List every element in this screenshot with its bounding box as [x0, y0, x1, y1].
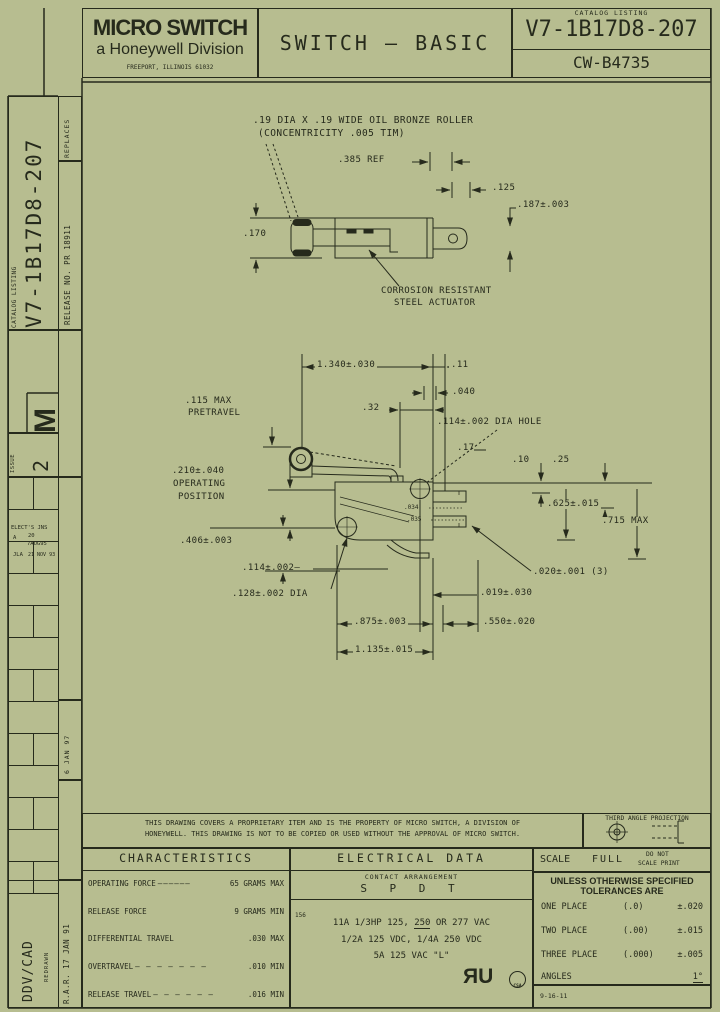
char-row-overtravel: OVERTRAVEL— — — — — — —.010 MIN	[88, 962, 284, 971]
char-value: 65 GRAMS MAX	[230, 879, 284, 888]
csa-text: CSA	[513, 984, 521, 989]
drawing-sheet: MICRO SWITCH a Honeywell Division FREEPO…	[0, 0, 720, 1012]
tol-label: ANGLES	[541, 972, 623, 983]
rating-line1b-underlined: 250	[414, 918, 430, 929]
op-position-line2: OPERATING	[173, 480, 225, 489]
issue-number: 2	[31, 440, 51, 472]
terminal-label-nc: .035	[407, 517, 421, 523]
tol-row-angles: ANGLES1°	[541, 972, 703, 983]
logo-text: MICRO SWITCH	[83, 17, 257, 39]
sidebar-cell-1	[58, 330, 82, 477]
ul-r: R	[463, 966, 478, 987]
form-strip: 9-16-11	[533, 985, 711, 1008]
catalog-listing-label: CATALOG LISTING	[513, 10, 710, 17]
rev-entry-1: ELECT'S JNS	[11, 526, 47, 532]
char-row-release-force: RELEASE FORCE9 GRAMS MIN	[88, 907, 284, 916]
dim-17: .17	[457, 444, 474, 453]
projection-label: THIRD ANGLE PROJECTION	[584, 816, 710, 822]
rev-entry-3a: JLA	[13, 553, 23, 559]
projection-box: THIRD ANGLE PROJECTION	[583, 813, 711, 848]
dim-020: .020±.001 (3)	[533, 568, 609, 577]
tol-row-one-place: ONE PLACE(.0)±.020	[541, 902, 703, 912]
pretravel-line1: .115 MAX	[185, 397, 232, 406]
redrawn-label: REDRAWN	[45, 922, 51, 982]
char-value: .030 MAX	[248, 934, 284, 943]
replaces-label: REPLACES	[64, 100, 71, 158]
op-position-line3: POSITION	[178, 493, 225, 502]
char-dashes: — — — — — — —	[133, 962, 248, 971]
rev-entry-3b: 21 NOV 93	[28, 553, 55, 558]
tol-label: TWO PLACE	[541, 926, 623, 936]
tol-ref: (.00)	[623, 926, 671, 936]
actuator-note-line2: STEEL ACTUATOR	[394, 299, 475, 308]
form-number: 9-16-11	[540, 993, 567, 1000]
tol-value: ±.015	[677, 926, 703, 936]
char-value: .010 MIN	[248, 962, 284, 971]
dim-170: .170	[243, 230, 266, 239]
dim-550: .550±.020	[483, 618, 535, 627]
dim-10: .10	[512, 456, 529, 465]
char-dashes: — — — — — —	[151, 990, 248, 999]
dim-385-ref: .385 REF	[338, 156, 385, 165]
sheet-title: SWITCH – BASIC	[259, 33, 511, 53]
actuator-note-line1: CORROSION RESISTANT	[381, 287, 492, 296]
sidebar-cell-2	[58, 477, 82, 700]
dim-019: .019±.030	[480, 589, 532, 598]
tol-ref: (.0)	[623, 902, 671, 912]
title-block: SWITCH – BASIC	[258, 8, 512, 78]
hole-note: .114±.002 DIA HOLE	[437, 418, 542, 427]
tolerance-header2: TOLERANCES ARE	[534, 887, 710, 896]
roller-note-line1: .19 DIA X .19 WIDE OIL BRONZE ROLLER	[253, 116, 473, 126]
char-value: 9 GRAMS MIN	[234, 907, 284, 916]
contact-arrangement-label: CONTACT ARRANGEMENT	[291, 874, 532, 881]
drawing-number: CW-B4735	[513, 55, 710, 71]
tol-row-three-place: THREE PLACE(.000)±.005	[541, 950, 703, 960]
tol-label: ONE PLACE	[541, 902, 623, 912]
revision-letter: M	[31, 395, 61, 433]
electrical-table: ELECTRICAL DATA CONTACT ARRANGEMENT S P …	[290, 848, 533, 1008]
rating-line1a: 11A 1/3HP 125,	[333, 918, 414, 928]
proprietary-line2: HONEYWELL. THIS DRAWING IS NOT TO BE COP…	[83, 831, 582, 838]
proprietary-line1: THIS DRAWING COVERS A PROPRIETARY ITEM A…	[83, 820, 582, 827]
char-row-differential-travel: DIFFERENTIAL TRAVEL.030 MAX	[88, 934, 284, 943]
dim-25: .25	[552, 456, 569, 465]
electrical-title: ELECTRICAL DATA	[291, 853, 532, 865]
drawn-by: R.A.R. 17 JAN 91	[63, 886, 71, 1004]
drawn-system: DDV/CAD	[22, 898, 35, 1002]
catalog-block: CATALOG LISTING V7-1B17D8-207 CW-B4735	[512, 8, 711, 78]
proprietary-box: THIS DRAWING COVERS A PROPRIETARY ITEM A…	[82, 813, 583, 848]
scale-label: SCALE	[540, 855, 570, 865]
logo-block: MICRO SWITCH a Honeywell Division FREEPO…	[82, 8, 258, 78]
tol-value: ±.005	[677, 950, 703, 960]
op-position-line1: .210±.040	[172, 467, 224, 476]
no-scale-line1: DO NOT	[646, 852, 669, 858]
scale-box: SCALE FULL DO NOT SCALE PRINT	[533, 848, 711, 872]
char-label: OPERATING FORCE	[88, 879, 156, 888]
terminal-label-no: .034	[404, 505, 418, 511]
char-value: .016 MIN	[248, 990, 284, 999]
tol-value: ±.020	[677, 902, 703, 912]
dim-32: .32	[362, 404, 379, 413]
scale-value: FULL	[592, 855, 624, 865]
tolerance-box: UNLESS OTHERWISE SPECIFIED TOLERANCES AR…	[533, 872, 711, 985]
dim-187: .187±.003	[517, 201, 569, 210]
logo-division: a Honeywell Division	[83, 42, 257, 58]
sidebar-catalog-number: V7-1B17D8-207	[24, 100, 45, 328]
sidebar-catalog-label: CATALOG LISTING	[12, 252, 18, 328]
tolerance-header1: UNLESS OTHERWISE SPECIFIED	[534, 877, 710, 886]
dim-114: .114±.002—	[242, 564, 300, 573]
dim-11: .11	[449, 361, 470, 370]
tol-label: THREE PLACE	[541, 950, 623, 960]
char-label: RELEASE FORCE	[88, 907, 147, 916]
dim-406: .406±.003	[180, 537, 232, 546]
rev-entry-2b: 20	[28, 534, 35, 540]
dim-128: .128±.002 DIA	[232, 590, 308, 599]
tol-value: 1°	[693, 972, 703, 983]
approval-date: 6 JAN 97	[64, 706, 71, 774]
rating-line1c: OR 277 VAC	[430, 918, 490, 928]
rating-line2: 1/2A 125 VDC, 1/4A 250 VDC	[291, 936, 532, 945]
dim-625: .625±.015	[545, 500, 601, 509]
dim-715: .715 MAX	[600, 517, 651, 526]
dim-1135: 1.135±.015	[353, 646, 415, 655]
dim-875: .875±.003	[352, 618, 408, 627]
rev-entry-2c: 7AUG95	[27, 542, 47, 548]
tol-row-two-place: TWO PLACE(.00)±.015	[541, 926, 703, 936]
char-label: DIFFERENTIAL TRAVEL	[88, 934, 174, 943]
char-dashes: ——————	[156, 879, 230, 888]
dim-125: .125	[492, 184, 515, 193]
char-row-release-travel: RELEASE TRAVEL— — — — — —.016 MIN	[88, 990, 284, 999]
catalog-number: V7-1B17D8-207	[513, 19, 710, 41]
rev-entry-2a: A	[13, 536, 16, 542]
dim-1340: 1.340±.030	[315, 361, 377, 370]
sidebar-cell-4	[58, 780, 82, 880]
contact-arrangement-value: S P D T	[291, 883, 532, 894]
release-number: RELEASE NO. PR 18911	[64, 165, 72, 325]
issue-label: ISSUE	[11, 437, 17, 473]
pretravel-line2: PRETRAVEL	[188, 409, 240, 418]
roller-note-line2: (CONCENTRICITY .005 TIM)	[258, 129, 405, 139]
char-label: OVERTRAVEL	[88, 962, 133, 971]
ul-u: U	[478, 965, 493, 988]
char-row-operating-force: OPERATING FORCE——————65 GRAMS MAX	[88, 879, 284, 888]
dim-040: .040	[450, 388, 477, 397]
rating-line1: 11A 1/3HP 125, 250 OR 277 VAC	[291, 919, 532, 928]
no-scale-line2: SCALE PRINT	[638, 861, 680, 867]
tol-ref	[623, 972, 671, 983]
char-label: RELEASE TRAVEL	[88, 990, 151, 999]
logo-address: FREEPORT, ILLINOIS 61032	[83, 65, 257, 71]
ul-recognized-icon: RU	[463, 966, 493, 987]
characteristics-title: CHARACTERISTICS	[83, 853, 289, 865]
rating-line3: 5A 125 VAC "L"	[291, 952, 532, 961]
tol-ref: (.000)	[623, 950, 671, 960]
characteristics-table: CHARACTERISTICS OPERATING FORCE——————65 …	[82, 848, 290, 1008]
csa-icon: CSA	[509, 971, 526, 988]
